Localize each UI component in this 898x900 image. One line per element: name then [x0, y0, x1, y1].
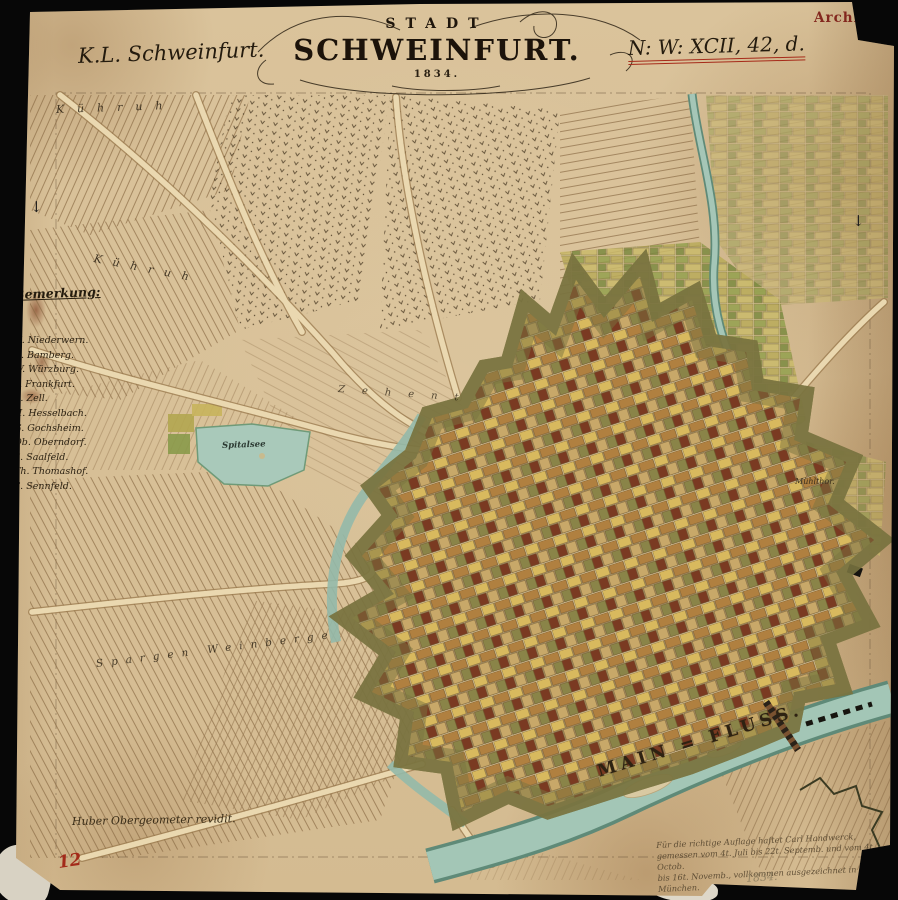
legend-item: W. Würzburg.	[14, 363, 144, 378]
edge-arrow-right-icon: ↓	[852, 212, 865, 230]
certification-year: 1834.	[746, 870, 778, 885]
gate-label-muehlthor: Mühlthor.	[795, 477, 835, 486]
legend-heading: Bemerkung:	[14, 282, 144, 302]
legend-item: H. Hesselbach.	[14, 407, 144, 422]
legend-item: B. Bamberg.	[14, 349, 144, 364]
legend-item: Z. Zell.	[14, 392, 144, 407]
legend-item: N. Niederwern.	[14, 334, 144, 349]
inventory-number: 12	[57, 850, 83, 873]
legend-item: Th. Thomashof.	[14, 465, 144, 480]
edge-arrow-left-icon: ↓	[30, 198, 43, 216]
title-kicker: STADT	[272, 16, 602, 32]
title-year: 1834.	[272, 69, 602, 80]
archive-stamp: Archiv	[814, 10, 869, 26]
catalog-reference: N: W: XCII, 42, d.	[628, 31, 805, 60]
title-name: SCHWEINFURT.	[272, 33, 602, 67]
legend: Bemerkung: N. Niederwern. B. Bamberg. W.…	[14, 287, 144, 495]
pond-label-spitalsee: Spitalsee	[222, 439, 266, 451]
legend-item: G. Gochsheim.	[14, 422, 144, 437]
map-sheet: STADT SCHWEINFURT. 1834. K.L. Schweinfur…	[0, 0, 898, 900]
catalog-reference-text: N: W: XCII, 42, d.	[628, 31, 806, 65]
legend-items: N. Niederwern. B. Bamberg. W. Würzburg. …	[14, 334, 144, 495]
legend-item: F. Frankfurt.	[14, 378, 144, 393]
legend-item: Ob. Oberndorf.	[14, 436, 144, 451]
certification-note: Für die richtige Auflage haftet Carl Han…	[656, 830, 898, 895]
map-title: STADT SCHWEINFURT. 1834.	[272, 16, 602, 80]
legend-item: S. Saalfeld.	[14, 451, 144, 466]
vineyard-rows	[210, 95, 560, 330]
archival-map-photo: STADT SCHWEINFURT. 1834. K.L. Schweinfur…	[0, 0, 898, 900]
legend-item: S. Sennfeld.	[14, 480, 144, 495]
